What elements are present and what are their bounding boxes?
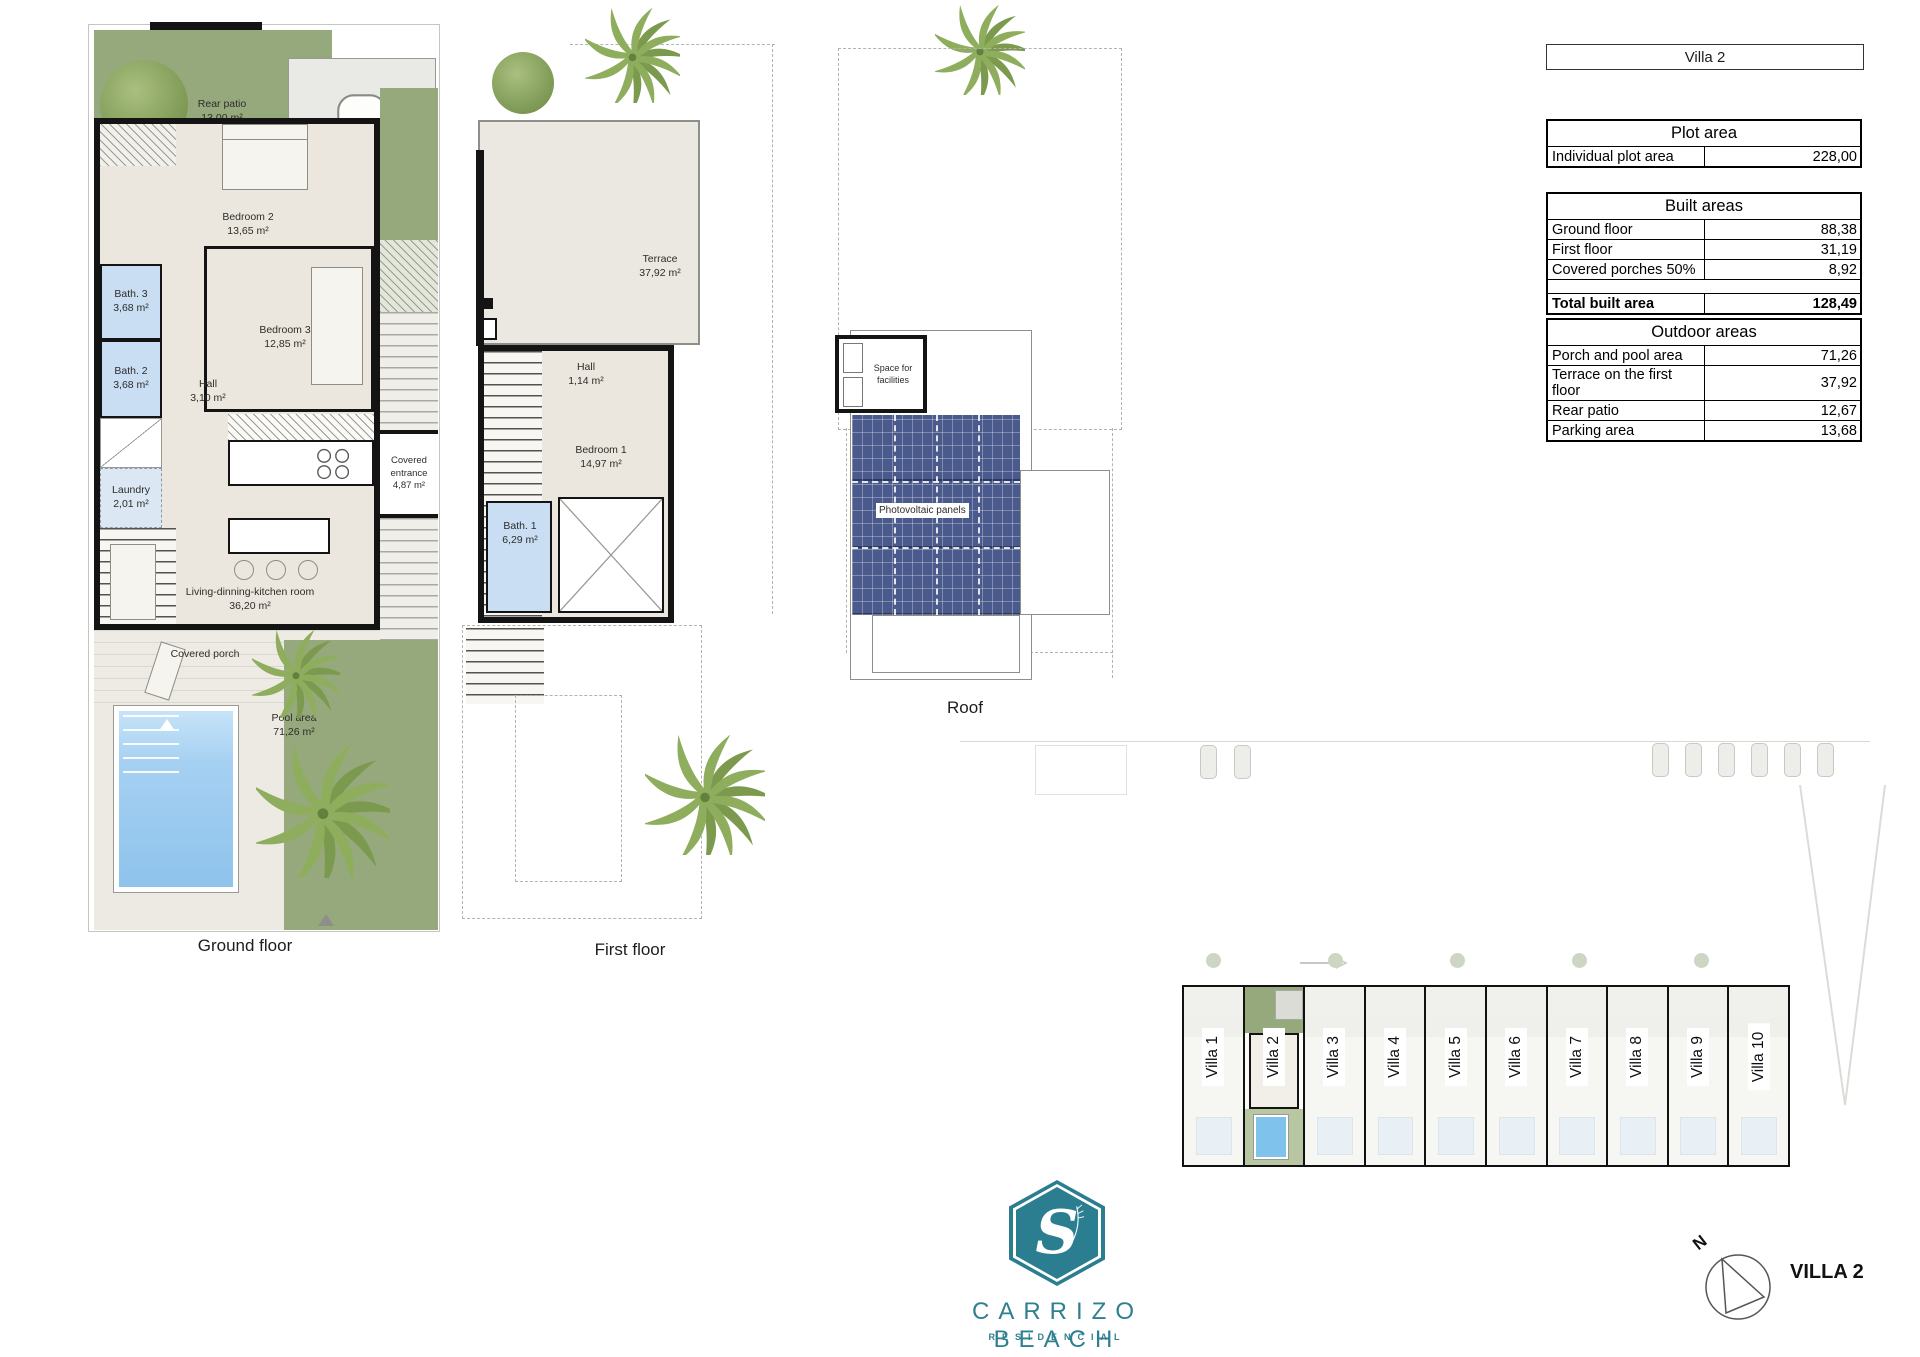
room-name: Bedroom 2 [222, 211, 273, 225]
parked-car [1718, 743, 1735, 777]
row-value: 71,26 [1704, 346, 1861, 366]
table-row: Ground floor 88,38 [1547, 220, 1861, 240]
plan-sheet: Rear patio 13,00 m² Bedroom 2 13,65 m² B… [0, 0, 1920, 1357]
pv-divider [978, 415, 980, 615]
brand-name: CARRIZO BEACH [920, 1298, 1195, 1354]
bed-bedroom2 [222, 124, 308, 190]
plot-area-table: Plot area Individual plot area 228,00 [1546, 119, 1862, 168]
site-villa-1: Villa 1 [1184, 987, 1245, 1165]
plot-dashed-left-lower [846, 428, 847, 653]
bathroom-3: Bath. 3 3,68 m² [100, 264, 162, 340]
terrace-wall [476, 150, 484, 346]
villa-strip-row: Villa 1 Villa 2 Villa 3 Villa 4 Villa 5 [1182, 985, 1790, 1167]
parked-car [1817, 743, 1834, 777]
row-label: First floor [1547, 240, 1704, 260]
palm-tree [585, 8, 680, 103]
row-label: Porch and pool area [1547, 346, 1704, 366]
logo-sprig-icon [1065, 1200, 1087, 1248]
room-name: Bath. 2 [114, 365, 147, 379]
site-villa-10: Villa 10 [1729, 987, 1788, 1165]
pv-divider [852, 547, 1020, 549]
table-row: Covered porches 50% 8,92 [1547, 260, 1861, 280]
villa-strip-label: Villa 1 [1202, 1028, 1224, 1086]
plot-dashed-right-lower [1112, 428, 1113, 678]
void-cross [560, 499, 662, 611]
equipment [843, 377, 863, 407]
room-name: Terrace [642, 253, 677, 267]
table-title: Plot area [1547, 120, 1861, 147]
room-name: Laundry [112, 484, 150, 498]
hob-icon [310, 446, 358, 482]
roof-step-outline [872, 615, 1020, 673]
outdoor-areas-table: Outdoor areas Porch and pool area 71,26 … [1546, 318, 1862, 442]
room-area: 36,20 m² [229, 600, 270, 614]
stool [298, 560, 318, 580]
room-label-bath1: Bath. 1 6,29 m² [492, 517, 548, 551]
room-name: Covered porch [171, 648, 240, 662]
bathroom-1: Bath. 1 6,29 m² [486, 501, 552, 613]
room-area: 3,68 m² [113, 302, 149, 316]
room-name: Rear patio [198, 98, 246, 112]
room-label-living: Living-dinning-kitchen room 36,20 m² [156, 582, 344, 618]
room-label-bedroom3: Bedroom 3 12,85 m² [225, 321, 345, 355]
stool [266, 560, 286, 580]
ground-floor-plan: Rear patio 13,00 m² Bedroom 2 13,65 m² B… [0, 0, 460, 970]
swimming-pool [114, 706, 238, 892]
room-name: Hall [199, 378, 217, 392]
parked-car [1652, 743, 1669, 777]
villa-strip-label: Villa 3 [1323, 1028, 1345, 1086]
room-name: Bath. 3 [114, 288, 147, 302]
driveway-hatch [380, 240, 438, 312]
room-name: Bedroom 1 [575, 444, 626, 458]
parked-car [1200, 745, 1217, 779]
row-label: Total built area [1547, 294, 1704, 315]
row-label: Ground floor [1547, 220, 1704, 240]
room-name: Living-dinning-kitchen room [186, 586, 314, 600]
site-villa-4: Villa 4 [1366, 987, 1427, 1165]
street-tree [1450, 953, 1465, 968]
room-name: Bath. 1 [503, 520, 536, 534]
site-plan: Villa 1 Villa 2 Villa 3 Villa 4 Villa 5 [960, 735, 1895, 1177]
brand-logo: S CARRIZO BEACH RESIDENCIAL [920, 1180, 1195, 1350]
room-area: 12,85 m² [264, 338, 305, 352]
site-villa-5: Villa 5 [1426, 987, 1487, 1165]
row-value: 128,49 [1704, 294, 1861, 315]
street-tree [1206, 953, 1221, 968]
void-over-living [558, 497, 664, 613]
pillow-line [223, 139, 307, 140]
room-name: Bedroom 3 [259, 324, 310, 338]
room-area: 13,65 m² [227, 225, 268, 239]
roof-plan: Space for facilities Photovoltaic panels… [828, 0, 1138, 740]
kitchen-island [228, 518, 330, 554]
row-label: Parking area [1547, 421, 1704, 442]
site-villa-7: Villa 7 [1548, 987, 1609, 1165]
table-row: First floor 31,19 [1547, 240, 1861, 260]
villa2-pool [1254, 1115, 1288, 1159]
site-villa-6: Villa 6 [1487, 987, 1548, 1165]
lower-pool-outline [515, 695, 622, 882]
street-tree [1694, 953, 1709, 968]
roof-step-outline [1020, 470, 1110, 615]
compass-block: N VILLA 2 [1690, 1225, 1910, 1335]
north-tick [318, 914, 334, 926]
entrance-steps-upper [380, 312, 438, 430]
parked-car [1234, 745, 1251, 779]
covered-entrance: Covered entrance 4,87 m² [380, 430, 438, 518]
row-label: Rear patio [1547, 401, 1704, 421]
brand-subtitle: RESIDENCIAL [920, 1332, 1195, 1342]
room-area: 1,14 m² [568, 375, 604, 389]
logo-monogram: S [1009, 1180, 1105, 1286]
street-block [1035, 745, 1127, 795]
logo-hexagon: S [1009, 1180, 1105, 1286]
table-row: Rear patio 12,67 [1547, 401, 1861, 421]
plot-dashed-right [772, 44, 773, 614]
pv-divider [852, 481, 1020, 483]
street-tree [1572, 953, 1587, 968]
spacer-row [1547, 280, 1861, 294]
room-area: 6,29 m² [502, 534, 538, 548]
villa-strip-label: Villa 8 [1626, 1028, 1648, 1086]
first-house: Hall 1,14 m² Bedroom 1 14,97 m² Bath. 1 … [478, 345, 674, 623]
room-label-bedroom2: Bedroom 2 13,65 m² [178, 208, 318, 242]
row-label: Terrace on the first floor [1547, 366, 1704, 401]
parked-car [1784, 743, 1801, 777]
row-value: 12,67 [1704, 401, 1861, 421]
villa-strip-label: Villa 9 [1687, 1028, 1709, 1086]
photovoltaic-panels: Photovoltaic panels [852, 415, 1020, 615]
room-area: 4,87 m² [393, 480, 425, 492]
room-area: 37,92 m² [639, 267, 680, 281]
boundary-wall [150, 22, 262, 30]
facilities-box: Space for facilities [835, 335, 927, 413]
villa2-garage [1275, 990, 1303, 1020]
row-label: Covered porches 50% [1547, 260, 1704, 280]
row-label: Individual plot area [1547, 147, 1704, 168]
laundry: Laundry 2,01 m² [100, 468, 162, 528]
parked-car [1685, 743, 1702, 777]
site-villa-3: Villa 3 [1305, 987, 1366, 1165]
stool [234, 560, 254, 580]
room-name: Hall [577, 361, 595, 375]
table-title: Outdoor areas [1547, 319, 1861, 346]
roof-caption: Roof [900, 698, 1030, 718]
site-villa-2-highlighted: Villa 2 [1245, 987, 1306, 1165]
built-areas-table: Built areas Ground floor 88,38 First flo… [1546, 192, 1862, 315]
row-value: 37,92 [1704, 366, 1861, 401]
ground-house: Bedroom 2 13,65 m² Bath. 3 3,68 m² Bath.… [94, 118, 380, 630]
villa-strip-label: Villa 6 [1505, 1028, 1527, 1086]
table-row: Terrace on the first floor 37,92 [1547, 366, 1861, 401]
villa-title-box: Villa 2 [1546, 44, 1864, 70]
first-floor-plan: Terrace 37,92 m² Hall 1,14 m² Bedroom 1 … [450, 0, 790, 980]
closet-hatch [100, 124, 176, 166]
table-row: Individual plot area 228,00 [1547, 147, 1861, 168]
street-line [960, 741, 1870, 742]
bathroom-2: Bath. 2 3,68 m² [100, 340, 162, 418]
palm-tree [645, 735, 765, 855]
garden-tree [492, 52, 554, 114]
sheet-villa-label: VILLA 2 [1790, 1261, 1864, 1284]
room-area: 71,26 m² [273, 726, 314, 740]
villa-strip-label: Villa 4 [1384, 1028, 1406, 1086]
compass-icon [1698, 1247, 1778, 1327]
row-value: 8,92 [1704, 260, 1861, 280]
row-value: 31,19 [1704, 240, 1861, 260]
terrace: Terrace 37,92 m² [478, 120, 700, 345]
site-villa-8: Villa 8 [1608, 987, 1669, 1165]
equipment [843, 343, 863, 373]
palm-tree [256, 744, 390, 878]
exterior-stairs [466, 628, 544, 704]
villa-strip-label: Villa 2 [1263, 1028, 1285, 1086]
street-tree [1328, 953, 1343, 968]
room-area: 3,10 m² [190, 392, 226, 406]
parked-car [1751, 743, 1768, 777]
fixture [482, 318, 497, 340]
villa-strip-label: Villa 5 [1445, 1028, 1467, 1086]
sofa [110, 544, 156, 620]
room-area: 3,68 m² [113, 379, 149, 393]
row-value: 88,38 [1704, 220, 1861, 240]
pool-marker [159, 719, 175, 731]
pv-label: Photovoltaic panels [876, 503, 969, 518]
road-marking [1790, 775, 1890, 1135]
table-row: Porch and pool area 71,26 [1547, 346, 1861, 366]
room-label-terrace: Terrace 37,92 m² [620, 250, 700, 284]
table-title: Built areas [1547, 193, 1861, 220]
wardrobe-hatch [228, 414, 374, 440]
villa-title: Villa 2 [1685, 49, 1726, 66]
room-area: 2,01 m² [113, 498, 149, 512]
room-area: 14,97 m² [580, 458, 621, 472]
site-villa-9: Villa 9 [1669, 987, 1730, 1165]
ground-floor-caption: Ground floor [160, 936, 330, 956]
kitchen-counter [228, 440, 374, 486]
entrance-steps-lower [380, 518, 438, 640]
facilities-text: Space for facilities [865, 363, 921, 386]
villa-strip-label: Villa 10 [1748, 1024, 1770, 1091]
room-name: Covered entrance [380, 455, 438, 480]
facilities-label: Space for facilities [865, 353, 921, 397]
room-label-bedroom1: Bedroom 1 14,97 m² [546, 441, 656, 475]
first-floor-caption: First floor [560, 940, 700, 960]
row-value: 228,00 [1704, 147, 1861, 168]
shower [100, 418, 162, 468]
room-label-hall: Hall 1,14 m² [548, 359, 624, 391]
villa-strip-label: Villa 7 [1566, 1028, 1588, 1086]
room-label-hall: Hall 3,10 m² [166, 376, 250, 408]
total-row: Total built area 128,49 [1547, 294, 1861, 315]
palm-tree [252, 630, 340, 718]
room-label-porch: Covered porch [140, 646, 270, 664]
table-row: Parking area 13,68 [1547, 421, 1861, 442]
row-value: 13,68 [1704, 421, 1861, 442]
